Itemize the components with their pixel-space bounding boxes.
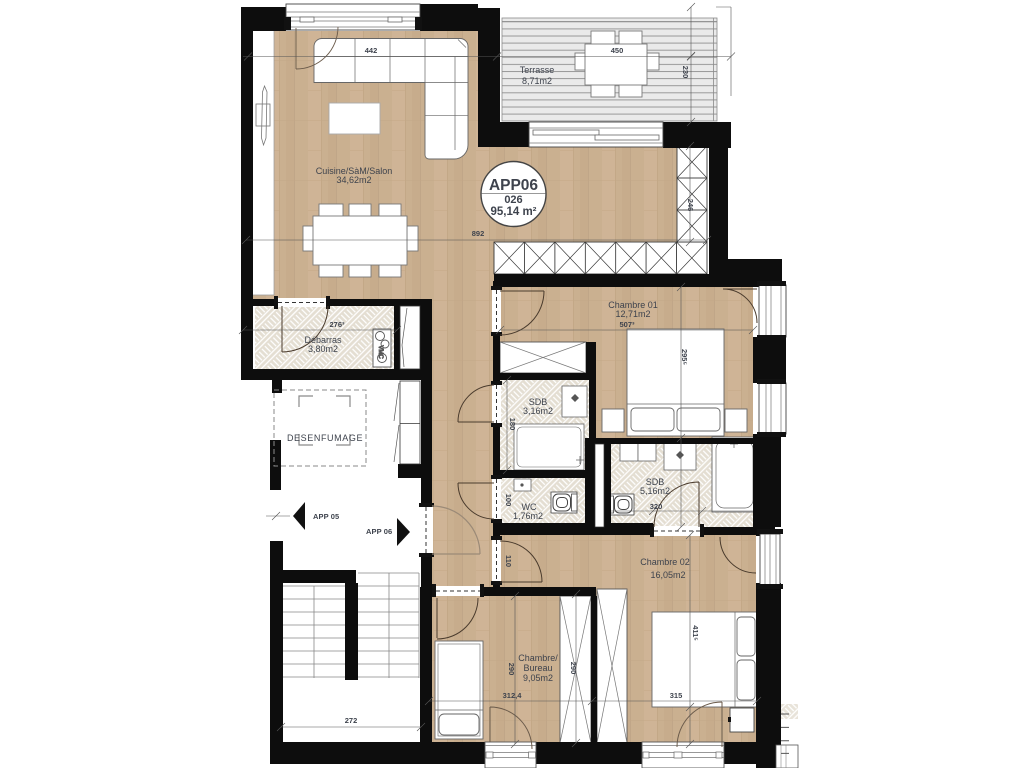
svg-text:95,14 m²: 95,14 m²	[490, 206, 536, 218]
svg-text:Terrasse: Terrasse	[520, 65, 555, 75]
svg-text:100: 100	[504, 494, 513, 507]
svg-text:246: 246	[686, 199, 695, 212]
svg-text:892: 892	[472, 229, 485, 238]
svg-text:APP06: APP06	[489, 177, 538, 194]
svg-text:Chambre/: Chambre/	[518, 653, 558, 663]
svg-text:Bureau: Bureau	[523, 663, 552, 673]
svg-text:12,71m2: 12,71m2	[615, 309, 650, 319]
svg-text:180: 180	[508, 418, 517, 431]
svg-text:295⁵: 295⁵	[680, 349, 689, 366]
svg-text:312,4: 312,4	[503, 691, 523, 700]
svg-text:315: 315	[670, 691, 683, 700]
svg-text:DESENFUMAGE: DESENFUMAGE	[287, 433, 363, 443]
svg-text:APP 05: APP 05	[313, 512, 339, 521]
svg-text:026: 026	[504, 194, 522, 206]
svg-text:272: 272	[345, 716, 358, 725]
svg-text:110: 110	[504, 555, 513, 567]
svg-text:APP 06: APP 06	[366, 527, 392, 536]
svg-text:230: 230	[681, 66, 690, 79]
svg-text:16,05m2: 16,05m2	[650, 570, 685, 580]
svg-text:34,62m2: 34,62m2	[336, 175, 371, 185]
svg-text:411⁵: 411⁵	[691, 625, 700, 641]
svg-text:3,16m2: 3,16m2	[523, 406, 553, 416]
svg-text:5,16m2: 5,16m2	[640, 486, 670, 496]
svg-text:320: 320	[650, 502, 663, 511]
svg-text:3,80m2: 3,80m2	[308, 344, 338, 354]
svg-text:VMC: VMC	[377, 345, 383, 359]
svg-text:276³: 276³	[329, 320, 345, 329]
svg-text:1,76m2: 1,76m2	[513, 511, 543, 521]
svg-text:450: 450	[611, 46, 624, 55]
svg-text:Chambre 02: Chambre 02	[640, 557, 690, 567]
svg-text:507³: 507³	[619, 320, 635, 329]
svg-text:290: 290	[507, 663, 516, 676]
svg-text:8,71m2: 8,71m2	[522, 76, 552, 86]
svg-text:442: 442	[365, 46, 378, 55]
svg-text:9,05m2: 9,05m2	[523, 673, 553, 683]
svg-text:290: 290	[569, 662, 578, 675]
